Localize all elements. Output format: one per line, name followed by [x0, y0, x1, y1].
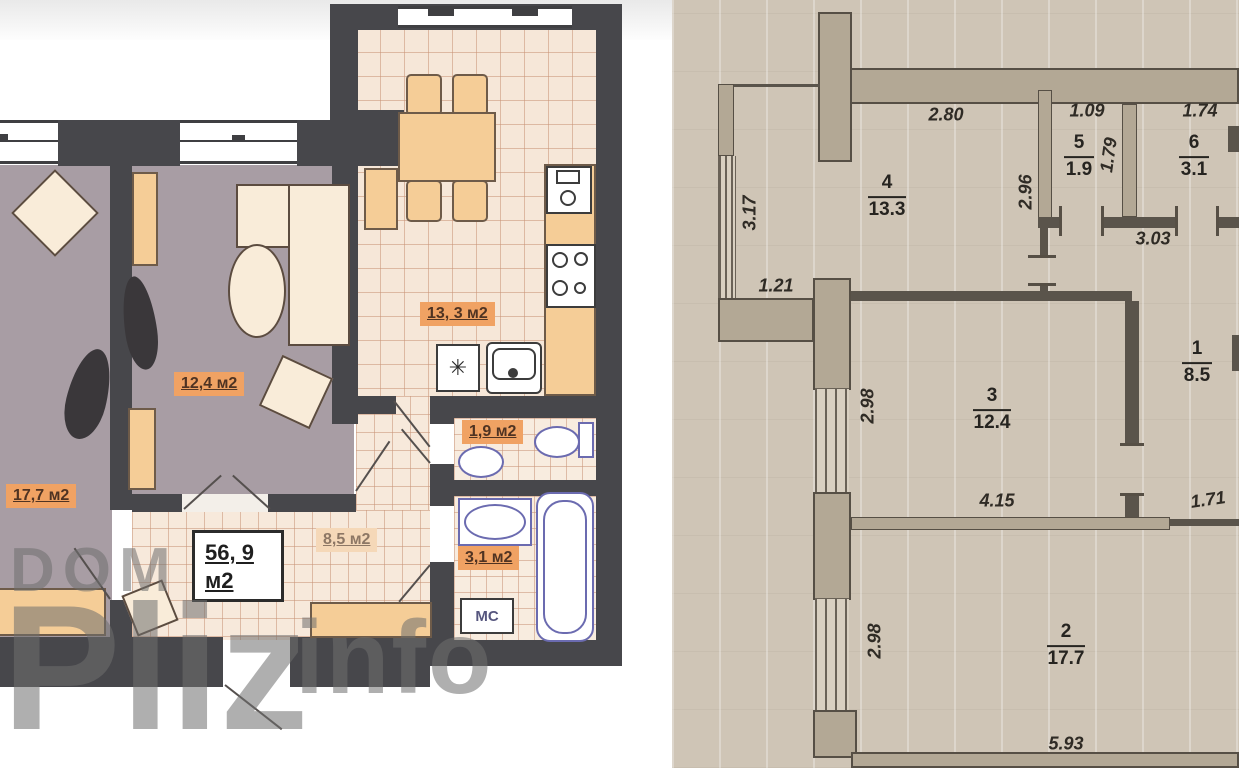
- room-label-5: 5 1.9: [1064, 133, 1094, 181]
- wardrobe: [132, 172, 158, 266]
- room-area: 3.1: [1181, 160, 1207, 181]
- burner: [552, 252, 568, 268]
- living-area-badge: 12,4 м2: [174, 372, 244, 396]
- window-tick: [0, 134, 8, 141]
- fraction-line: [973, 409, 1011, 411]
- wall: [356, 110, 404, 166]
- window-line: [398, 6, 572, 9]
- total-area-unit: м2: [205, 567, 281, 595]
- wall: [1125, 301, 1139, 445]
- dimension-label: 1.21: [758, 276, 793, 297]
- dining-table: [398, 112, 496, 182]
- coffee-table: [228, 244, 286, 338]
- hob-unit: ✳: [436, 344, 480, 392]
- door-tick: [1101, 206, 1104, 236]
- window-tick: [428, 8, 454, 16]
- living-area-label: 12,4 м2: [181, 375, 237, 392]
- fraction-line: [1179, 156, 1209, 158]
- chair: [406, 74, 442, 116]
- wall: [596, 4, 622, 664]
- dimension-label: 4.15: [979, 491, 1014, 512]
- wall: [58, 120, 180, 166]
- wall: [813, 492, 851, 600]
- bath-area-label: 3,1 м2: [465, 549, 512, 566]
- wall: [851, 517, 1170, 530]
- sink-basin: [556, 170, 580, 184]
- wall: [813, 278, 851, 390]
- window-line: [398, 25, 572, 28]
- window: [815, 598, 849, 714]
- washing-machine-label: МС: [475, 608, 498, 625]
- burner: [574, 252, 588, 266]
- door-tick: [1216, 206, 1219, 236]
- wall: [1122, 104, 1137, 217]
- wall: [430, 464, 454, 506]
- bed: [0, 588, 106, 636]
- dimension-label: 2.98: [858, 388, 879, 423]
- bath-sink: [464, 504, 526, 540]
- right-floor-plan: 2.80 1.09 1.74 1.79 2.96 3.03 3.17 1.21 …: [672, 0, 1239, 768]
- room-number: 6: [1189, 133, 1200, 154]
- room-number: 1: [1192, 339, 1203, 360]
- wall: [1219, 217, 1239, 228]
- room-number: 4: [882, 173, 893, 194]
- dimension-label: 1.09: [1069, 101, 1104, 122]
- balcony-window: [718, 156, 736, 300]
- wall: [430, 640, 622, 666]
- bath-area-badge: 3,1 м2: [458, 546, 519, 570]
- faucet: [508, 368, 518, 378]
- door-tick: [1059, 206, 1062, 236]
- wall: [1232, 335, 1239, 371]
- fridge: [364, 168, 398, 230]
- wall: [1038, 217, 1060, 228]
- bedroom-area-badge: 17,7 м2: [6, 484, 76, 508]
- room-area: 8.5: [1184, 366, 1210, 387]
- fraction-line: [1047, 645, 1085, 647]
- chair: [452, 180, 488, 222]
- hall-bench: [310, 602, 432, 638]
- wall: [454, 480, 622, 496]
- wall: [430, 396, 622, 418]
- kitchen-area-badge: 13, 3 м2: [420, 302, 495, 326]
- kitchen-area-label: 13, 3 м2: [427, 305, 488, 322]
- room-label-6: 6 3.1: [1179, 133, 1209, 181]
- bedroom-area-label: 17,7 м2: [13, 487, 69, 504]
- wall: [1038, 90, 1052, 220]
- wc-area-badge: 1,9 м2: [462, 420, 523, 444]
- room-number: 2: [1061, 622, 1072, 643]
- hob-symbol: ✳: [449, 355, 467, 381]
- wall: [354, 396, 396, 414]
- total-area-box: 56, 9 м2: [192, 530, 284, 602]
- room-label-2: 2 17.7: [1047, 622, 1085, 670]
- wall: [818, 12, 852, 162]
- bathtub-inner: [543, 500, 587, 634]
- door-tick: [1028, 255, 1056, 258]
- wall: [813, 710, 857, 758]
- window: [815, 388, 849, 496]
- floor-plan-image: ✳ МС 13, 3 м2 12,4 м2 17,7 м2 1,9 м2 3,1…: [0, 0, 1239, 768]
- chair: [406, 180, 442, 222]
- wall: [330, 4, 358, 166]
- room-area: 12.4: [974, 413, 1011, 434]
- room-label-1: 1 8.5: [1182, 339, 1212, 387]
- fraction-line: [1182, 362, 1212, 364]
- room-label-4: 4 13.3: [868, 173, 906, 221]
- wall: [851, 291, 1132, 301]
- room-area: 13.3: [869, 200, 906, 221]
- wall: [132, 494, 182, 512]
- room-number: 5: [1074, 133, 1085, 154]
- fraction-line: [1064, 156, 1094, 158]
- faucet: [560, 190, 576, 206]
- chair: [452, 74, 488, 116]
- dimension-label: 3.03: [1135, 229, 1170, 250]
- fraction-line: [868, 196, 906, 198]
- dimension-label: 2.80: [928, 105, 963, 126]
- wall: [0, 637, 223, 687]
- room-area: 17.7: [1048, 649, 1085, 670]
- washing-machine: МС: [460, 598, 514, 634]
- hall-area-badge: 8,5 м2: [316, 528, 377, 552]
- toilet-bowl: [534, 426, 580, 458]
- window-tick: [512, 8, 538, 16]
- dimension-label: 1.74: [1182, 101, 1217, 122]
- wc-area-label: 1,9 м2: [469, 423, 516, 440]
- wall: [1170, 519, 1239, 526]
- wall: [1228, 126, 1239, 152]
- dimension-label: 2.96: [1016, 174, 1037, 209]
- door-tick: [1120, 493, 1144, 496]
- toilet-tank: [578, 422, 594, 458]
- dimension-label: 3.17: [740, 195, 761, 230]
- wall: [268, 494, 356, 512]
- left-floor-plan: ✳ МС 13, 3 м2 12,4 м2 17,7 м2 1,9 м2 3,1…: [0, 0, 672, 768]
- entrance-door-leaf: [224, 684, 282, 730]
- wall: [718, 84, 734, 156]
- room-area: 1.9: [1066, 160, 1092, 181]
- dimension-label: 1.79: [1096, 136, 1122, 174]
- wall: [851, 752, 1239, 768]
- door-tick: [1175, 206, 1178, 236]
- burner: [574, 282, 586, 294]
- burner: [552, 280, 568, 296]
- dimension-label: 5.93: [1048, 734, 1083, 755]
- room-label-3: 3 12.4: [973, 386, 1011, 434]
- total-area-value: 56, 9: [205, 539, 281, 567]
- room-number: 3: [987, 386, 998, 407]
- window-tick: [232, 135, 245, 141]
- door-tick: [1028, 283, 1056, 286]
- sofa: [288, 184, 350, 346]
- wardrobe: [128, 408, 156, 490]
- dimension-label: 1.71: [1189, 487, 1227, 513]
- wall: [430, 396, 454, 424]
- hall-area-label: 8,5 м2: [323, 531, 370, 548]
- wall: [718, 298, 814, 342]
- door-tick: [1120, 443, 1144, 446]
- dimension-label: 2.98: [865, 623, 886, 658]
- wall: [290, 637, 430, 687]
- wall: [430, 562, 454, 642]
- wc-sink: [458, 446, 504, 478]
- wall: [1104, 217, 1176, 228]
